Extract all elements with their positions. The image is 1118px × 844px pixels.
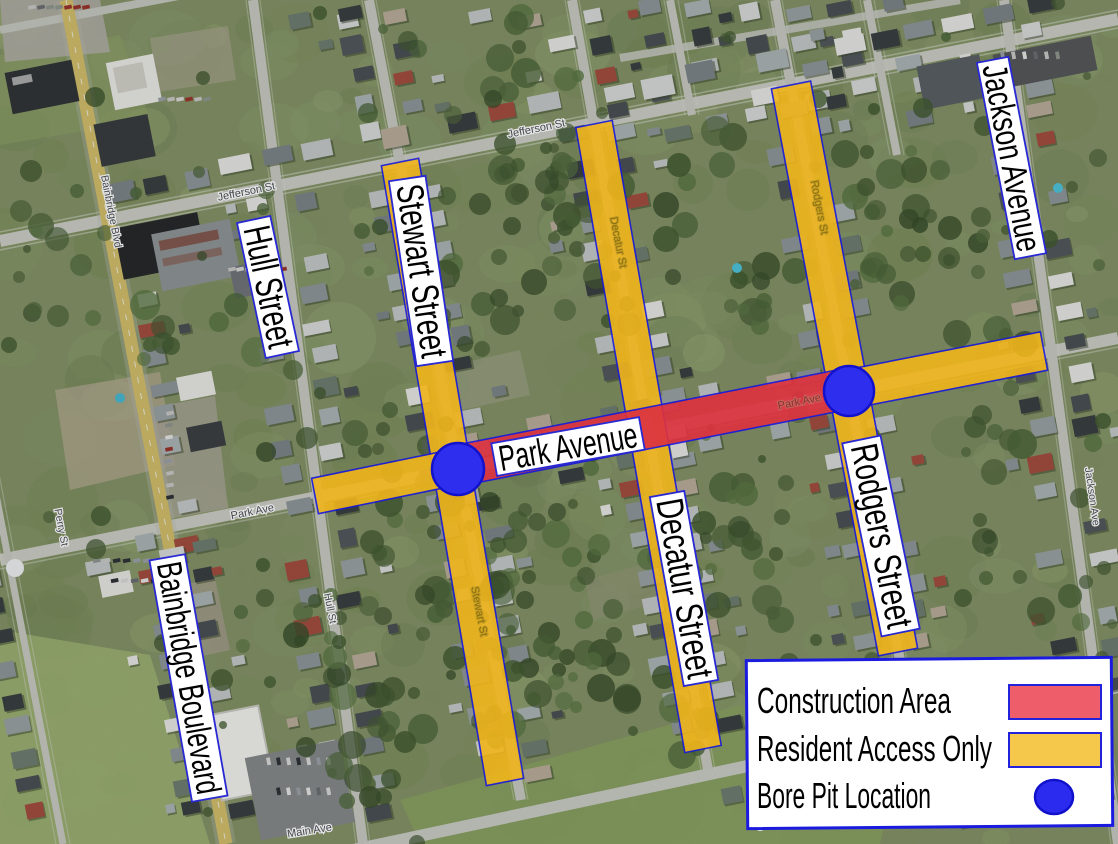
svg-text:Construction Area: Construction Area [757, 680, 952, 721]
svg-text:Resident Access Only: Resident Access Only [757, 728, 992, 769]
svg-text:Bore Pit Location: Bore Pit Location [757, 775, 931, 816]
